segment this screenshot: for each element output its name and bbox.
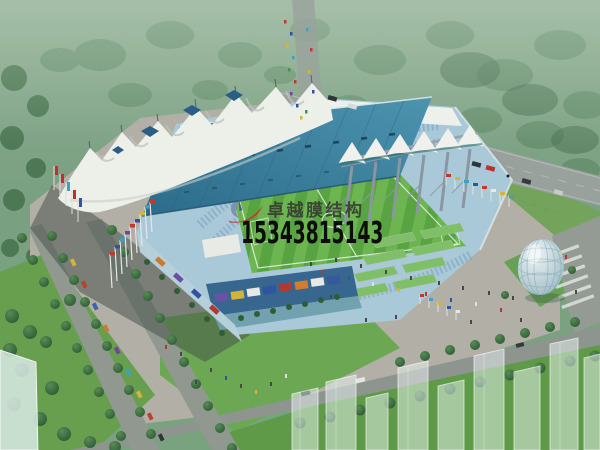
stadium-aerial-scene	[0, 0, 600, 450]
aerial-rendering: 卓越膜结构 15343815143	[0, 0, 600, 450]
corner-building	[0, 350, 38, 450]
